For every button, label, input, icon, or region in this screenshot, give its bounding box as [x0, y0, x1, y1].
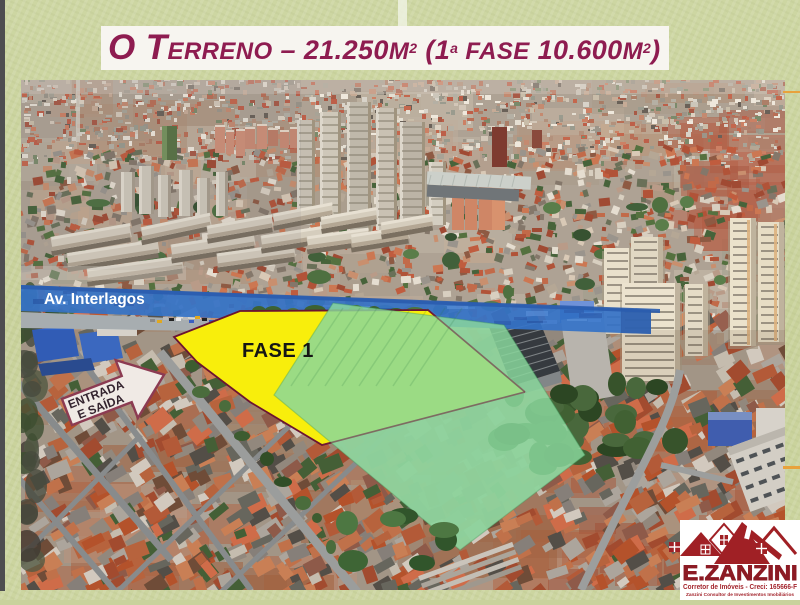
svg-text:Corretor de Imóveis - Creci: 1: Corretor de Imóveis - Creci: 165666-F	[683, 584, 798, 591]
svg-text:FASE 1: FASE 1	[242, 340, 314, 362]
svg-text:E.ZANZINI: E.ZANZINI	[683, 562, 798, 585]
svg-text:Zanzini Consultor de Investime: Zanzini Consultor de Investimentos Imobi…	[686, 592, 794, 598]
svg-text:Av. Interlagos: Av. Interlagos	[44, 291, 145, 308]
